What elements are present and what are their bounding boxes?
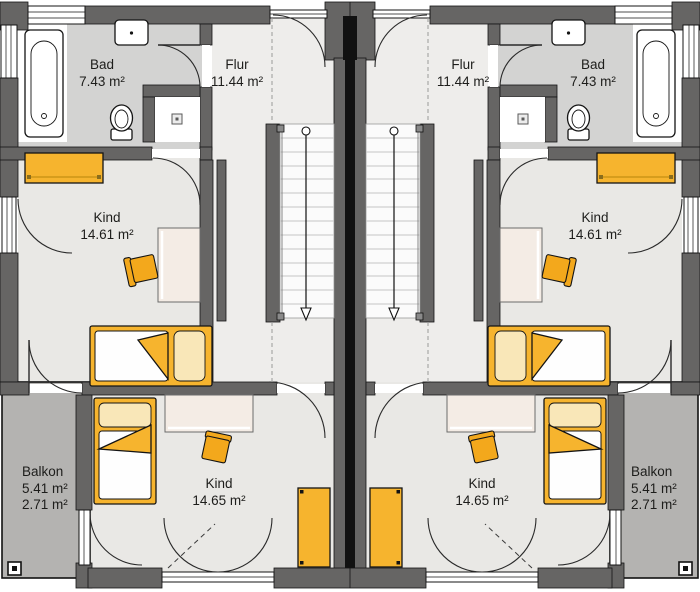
window	[162, 572, 274, 582]
door-opening	[490, 45, 498, 87]
wardrobe	[298, 488, 330, 567]
bathtub	[637, 30, 675, 137]
window	[426, 572, 538, 582]
door-opening	[29, 384, 82, 393]
sink	[552, 20, 585, 45]
door-opening	[500, 149, 548, 158]
newel-post	[277, 313, 284, 320]
door-opening	[202, 45, 210, 87]
bed	[90, 326, 212, 386]
shower-tray	[155, 97, 200, 142]
newel-post	[416, 313, 423, 320]
unit-right-plan	[350, 0, 700, 592]
wardrobe	[370, 488, 402, 567]
window	[270, 10, 327, 18]
bed	[544, 398, 606, 504]
window	[1, 25, 17, 78]
bed	[488, 326, 610, 386]
window	[684, 197, 698, 253]
window	[373, 10, 430, 18]
window	[79, 510, 90, 565]
toilet	[568, 105, 590, 140]
bathtub	[25, 30, 63, 137]
balcony-drain	[8, 562, 21, 575]
window	[28, 6, 85, 24]
newel-post	[277, 125, 284, 132]
balcony-drain	[679, 562, 692, 575]
floor-plan: Bad7.43 m² Flur11.44 m² Flur11.44 m² Bad…	[0, 0, 700, 592]
unit-plan-drawing	[0, 0, 350, 592]
stairs	[277, 124, 334, 320]
unit-plan-drawing	[350, 0, 700, 592]
door-opening	[618, 384, 671, 393]
sideboard	[597, 153, 675, 183]
window	[610, 510, 621, 565]
door-opening	[152, 149, 200, 158]
desk	[158, 228, 200, 302]
bed	[94, 398, 156, 504]
unit-left-plan	[0, 0, 350, 592]
window	[615, 6, 672, 24]
stairs	[366, 124, 423, 320]
sideboard	[25, 153, 103, 183]
window	[683, 25, 699, 78]
desk	[500, 228, 542, 302]
newel-post	[416, 125, 423, 132]
toilet	[111, 105, 133, 140]
sink	[115, 20, 148, 45]
desk	[447, 395, 535, 432]
shower-tray	[500, 97, 545, 142]
desk	[165, 395, 253, 432]
window	[2, 197, 16, 253]
